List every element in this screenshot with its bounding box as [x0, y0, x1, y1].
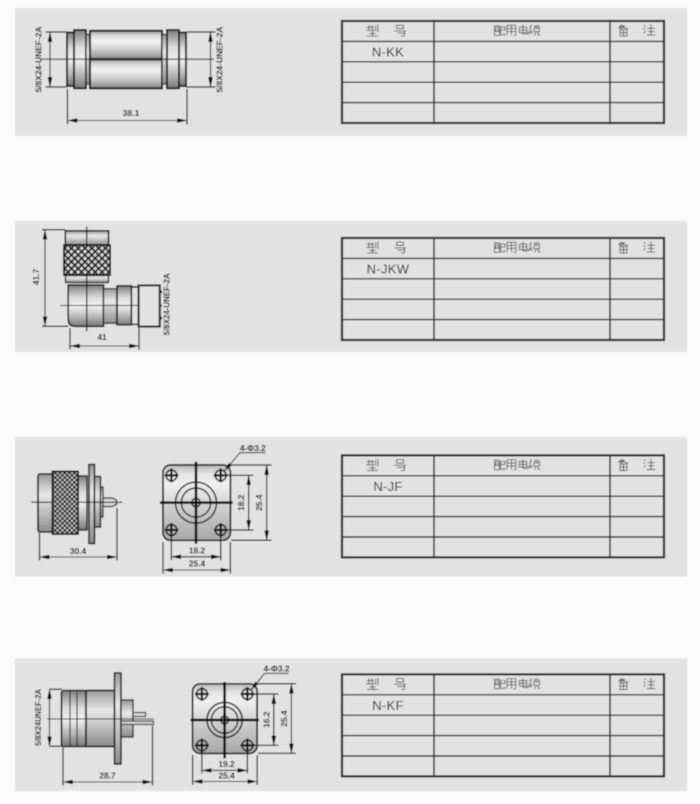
svg-text:N-KF: N-KF: [372, 698, 404, 713]
svg-text:5/8X24UNEF-2A: 5/8X24UNEF-2A: [33, 689, 43, 746]
svg-text:18.2: 18.2: [189, 546, 206, 556]
svg-text:25.4: 25.4: [254, 494, 264, 511]
svg-text:41: 41: [97, 332, 107, 342]
svg-text:4-Φ3.2: 4-Φ3.2: [240, 443, 266, 453]
svg-text:25.4: 25.4: [218, 770, 235, 780]
svg-text:38.1: 38.1: [123, 108, 140, 118]
svg-text:41.7: 41.7: [31, 269, 41, 286]
svg-text:N-JKW: N-JKW: [367, 261, 410, 276]
svg-text:N-KK: N-KK: [372, 44, 404, 59]
svg-text:30.4: 30.4: [70, 546, 87, 556]
svg-text:5/8X24-UNEF-2A: 5/8X24-UNEF-2A: [34, 26, 44, 92]
svg-text:25.4: 25.4: [189, 559, 206, 569]
svg-text:28.7: 28.7: [99, 771, 116, 781]
svg-text:N-JF: N-JF: [373, 479, 402, 494]
svg-text:25.4: 25.4: [279, 710, 289, 727]
svg-text:16.2: 16.2: [261, 711, 271, 728]
svg-text:5/8X24-UNEF-2A: 5/8X24-UNEF-2A: [215, 26, 225, 92]
svg-text:19.2: 19.2: [218, 759, 235, 769]
svg-text:4-Φ3.2: 4-Φ3.2: [264, 664, 290, 674]
svg-text:5/8X24-UNEF-2A: 5/8X24-UNEF-2A: [162, 273, 172, 335]
svg-text:18.2: 18.2: [236, 494, 246, 511]
